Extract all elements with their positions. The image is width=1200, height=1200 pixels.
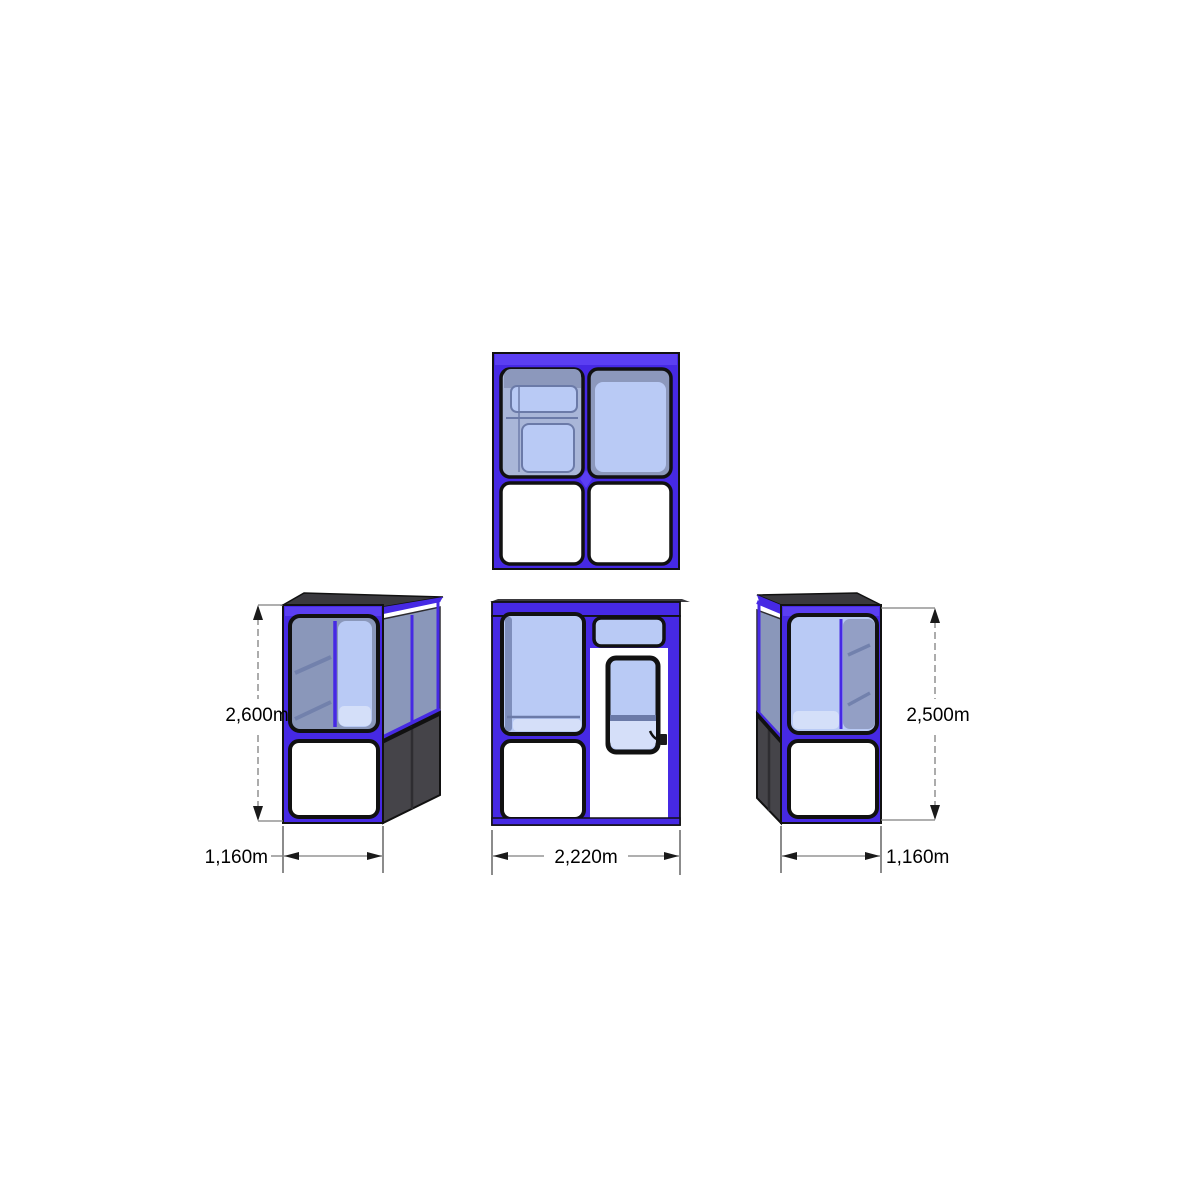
- arrowhead-up: [930, 608, 940, 623]
- top-view-glass-quadrant-left: [501, 369, 583, 477]
- front-window: [789, 615, 877, 733]
- height-label: 2,600m: [225, 705, 288, 726]
- dimension-height: 2,600m: [225, 605, 288, 821]
- arrowhead-left: [284, 852, 299, 860]
- interior-counter: [511, 386, 577, 412]
- dimension-width: 1,160m: [781, 826, 949, 873]
- front-elevation-view: 2,220m: [480, 585, 700, 885]
- front-solid-panel: [502, 741, 584, 819]
- glass-bright-strip: [513, 719, 581, 731]
- front-window: [290, 616, 378, 731]
- glass-shadow-pane: [843, 619, 875, 729]
- window-jamb-reflection: [505, 617, 512, 731]
- front-face: [781, 605, 881, 823]
- arrowhead-left: [493, 852, 508, 860]
- glass-bright-strip: [339, 706, 371, 726]
- front-door-bay: [590, 618, 668, 822]
- front-left-bay: [502, 614, 584, 819]
- top-view-solid-panel-left: [501, 483, 583, 564]
- width-label: 1,160m: [886, 847, 949, 868]
- front-face: [283, 605, 383, 823]
- transom-window: [594, 618, 664, 646]
- arrowhead-down: [930, 805, 940, 820]
- door-window-lower-pane: [610, 721, 656, 749]
- width-label: 2,220m: [554, 847, 617, 868]
- bottom-sill: [492, 818, 680, 825]
- arrowhead-down: [253, 806, 263, 821]
- height-label: 2,500m: [906, 705, 969, 726]
- arrowhead-left: [782, 852, 797, 860]
- front-solid-panel: [789, 741, 877, 817]
- dimension-height: 2,500m: [881, 608, 970, 820]
- dimension-width: 1,160m: [205, 826, 383, 873]
- drawing-canvas: 2,600m 1,160m: [0, 0, 1200, 1200]
- arrowhead-up: [253, 605, 263, 620]
- front-solid-panel: [290, 741, 378, 817]
- door-window-divider: [610, 715, 656, 721]
- interior-stool: [522, 424, 574, 472]
- glass-bright-strip: [793, 711, 839, 729]
- handle-lock-block: [660, 734, 667, 745]
- arrowhead-right: [664, 852, 679, 860]
- top-view-glass-quadrant-right: [589, 369, 671, 477]
- door-window: [608, 658, 658, 752]
- left-perspective-view: 2,600m 1,160m: [200, 585, 455, 885]
- top-plan-view: [492, 352, 680, 570]
- glass-pane: [595, 382, 666, 472]
- dimension-width: 2,220m: [492, 830, 680, 875]
- top-view-solid-panel-right: [589, 483, 671, 564]
- top-view-roof-edge: [495, 354, 677, 365]
- width-label: 1,160m: [205, 847, 268, 868]
- arrowhead-right: [367, 852, 382, 860]
- arrowhead-right: [865, 852, 880, 860]
- right-perspective-view: 2,500m 1,160m: [745, 585, 980, 885]
